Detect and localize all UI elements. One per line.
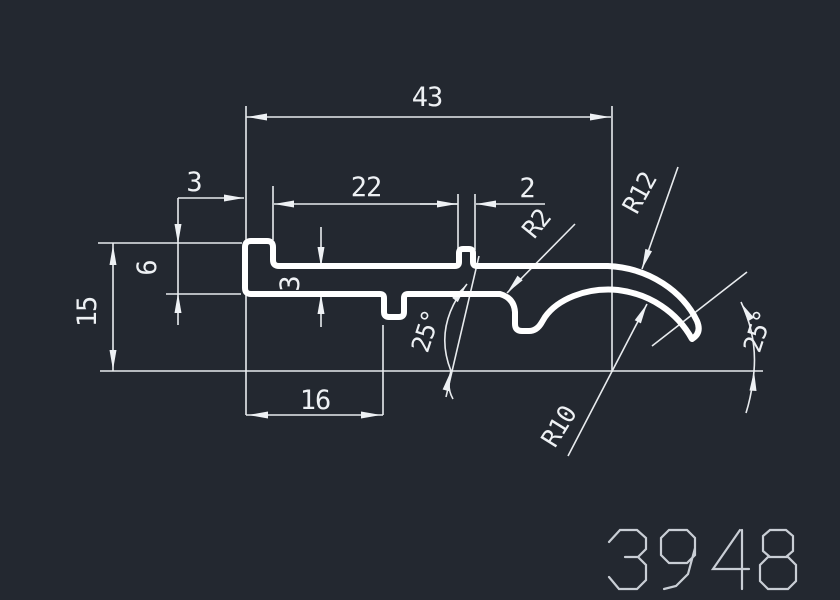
label-wall-thickness: 3 (275, 276, 306, 291)
label-flange-height: 6 (132, 260, 163, 275)
label-total-height: 15 (72, 297, 103, 328)
label-upper-span: 22 (351, 172, 382, 203)
label-total-width: 43 (412, 82, 443, 113)
label-lip-width: 3 (186, 167, 201, 198)
cad-canvas: 43 3 22 2 6 15 3 16 R2 R12 R10 25° 25° (0, 0, 840, 600)
label-lower-span: 16 (300, 385, 331, 416)
label-notch-width: 2 (519, 173, 534, 204)
